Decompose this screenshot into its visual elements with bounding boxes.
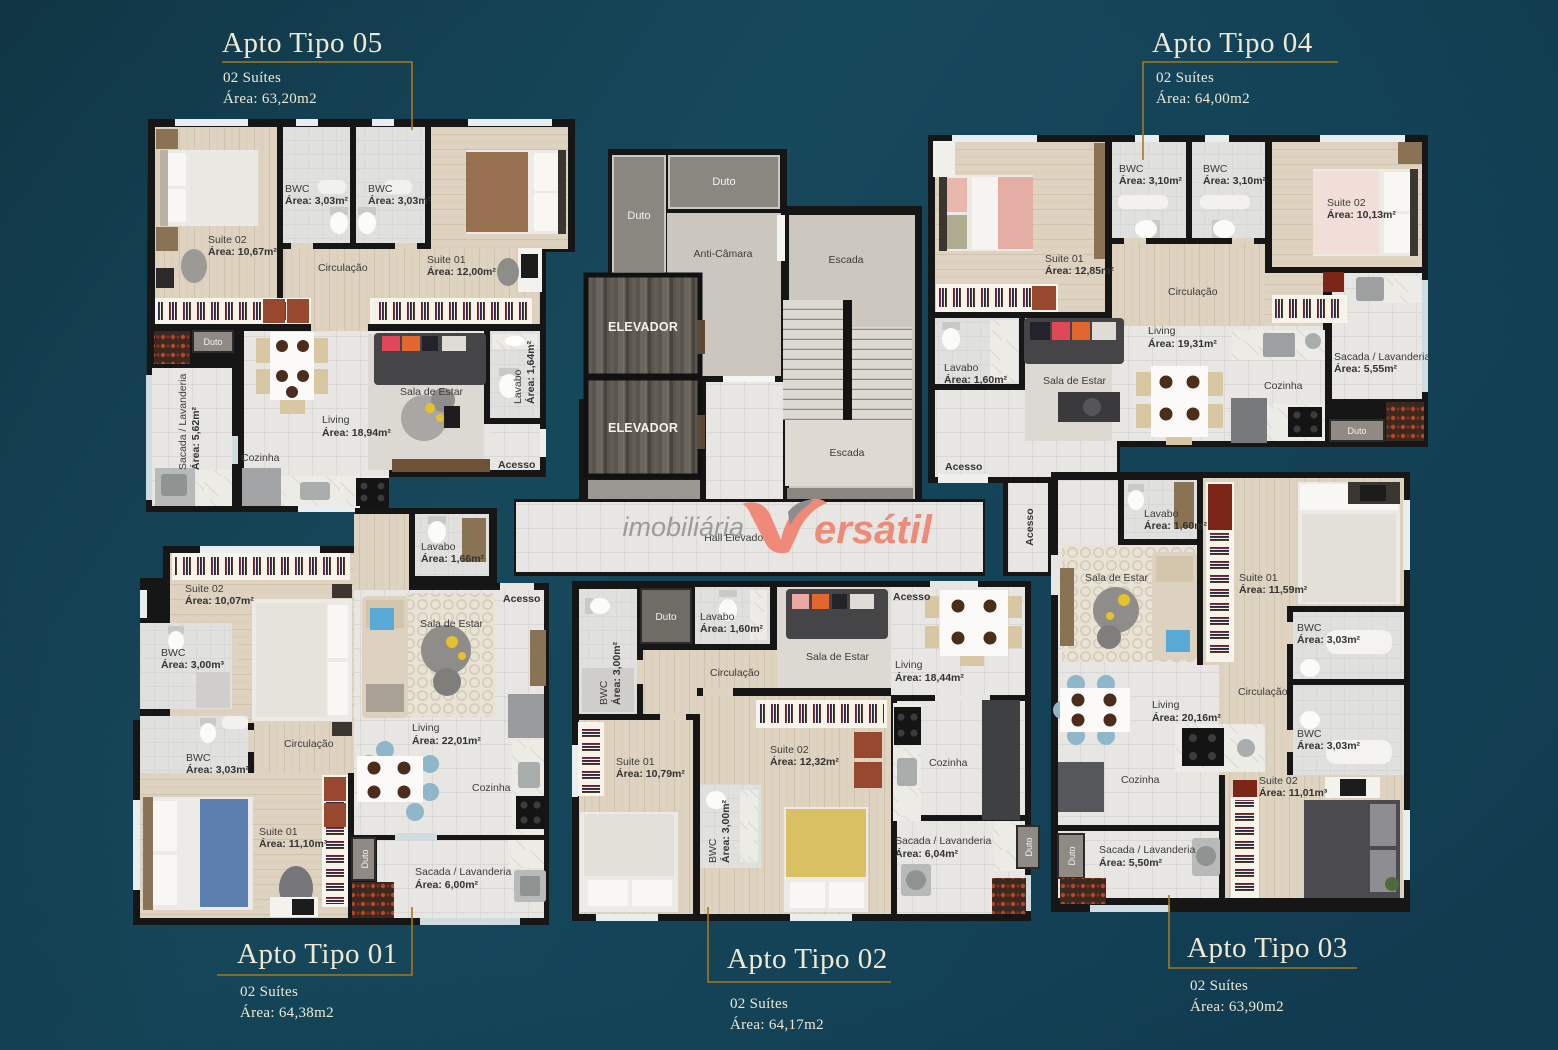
svg-text:Living: Living bbox=[412, 722, 440, 734]
svg-text:Acesso: Acesso bbox=[498, 459, 535, 471]
svg-text:Living: Living bbox=[895, 659, 923, 671]
svg-text:Área: 19,31m²: Área: 19,31m² bbox=[1148, 337, 1217, 350]
svg-text:Área: 12,85m²: Área: 12,85m² bbox=[1045, 264, 1114, 277]
svg-text:Área: 11,59m²: Área: 11,59m² bbox=[1239, 583, 1308, 596]
svg-text:BWC: BWC bbox=[707, 838, 719, 863]
svg-text:Área: 6,00m²: Área: 6,00m² bbox=[415, 878, 479, 891]
svg-text:Sacada / Lavanderia: Sacada / Lavanderia bbox=[895, 835, 991, 847]
svg-text:Apto Tipo 02: Apto Tipo 02 bbox=[727, 943, 888, 975]
svg-text:Área: 1,66m²: Área: 1,66m² bbox=[421, 552, 485, 565]
svg-text:Living: Living bbox=[1152, 699, 1180, 711]
svg-text:Área: 12,32m²: Área: 12,32m² bbox=[770, 755, 839, 768]
svg-text:Sala de Estar: Sala de Estar bbox=[1085, 572, 1149, 584]
svg-text:02 Suítes: 02 Suítes bbox=[240, 984, 298, 1000]
svg-text:Área: 6,04m²: Área: 6,04m² bbox=[895, 847, 959, 860]
svg-text:Sala de Estar: Sala de Estar bbox=[400, 386, 464, 398]
svg-text:ELEVADOR: ELEVADOR bbox=[608, 320, 678, 334]
svg-text:Área: 3,03m²: Área: 3,03m² bbox=[1297, 739, 1361, 752]
svg-text:ELEVADOR: ELEVADOR bbox=[608, 421, 678, 435]
svg-text:Duto: Duto bbox=[712, 176, 735, 188]
svg-text:Cozinha: Cozinha bbox=[929, 757, 968, 769]
svg-text:Acesso: Acesso bbox=[503, 593, 540, 605]
svg-text:BWC: BWC bbox=[161, 647, 186, 659]
svg-text:Anti-Câmara: Anti-Câmara bbox=[694, 248, 753, 260]
svg-text:Escada: Escada bbox=[829, 447, 864, 459]
svg-text:BWC: BWC bbox=[285, 183, 310, 195]
svg-text:Área: 1,60m²: Área: 1,60m² bbox=[944, 373, 1008, 386]
svg-text:Circulação: Circulação bbox=[318, 262, 368, 274]
svg-text:Cozinha: Cozinha bbox=[241, 452, 280, 464]
svg-text:Duto: Duto bbox=[360, 849, 370, 868]
svg-text:Circulação: Circulação bbox=[1238, 686, 1288, 698]
svg-text:ersátil: ersátil bbox=[814, 508, 933, 552]
svg-text:Acesso: Acesso bbox=[1024, 508, 1036, 545]
svg-text:Área: 18,44m²: Área: 18,44m² bbox=[895, 671, 964, 684]
svg-text:Lavabo: Lavabo bbox=[700, 611, 735, 623]
svg-text:02 Suítes: 02 Suítes bbox=[730, 996, 788, 1012]
svg-text:Apto Tipo 01: Apto Tipo 01 bbox=[237, 938, 398, 970]
svg-text:Lavabo: Lavabo bbox=[1144, 508, 1179, 520]
svg-text:Apto Tipo 05: Apto Tipo 05 bbox=[222, 27, 383, 59]
svg-text:Duto: Duto bbox=[1024, 837, 1034, 856]
svg-text:Living: Living bbox=[1148, 325, 1176, 337]
svg-text:Sacada / Lavanderia: Sacada / Lavanderia bbox=[415, 866, 511, 878]
svg-text:Área: 18,94m²: Área: 18,94m² bbox=[322, 426, 391, 439]
svg-text:Lavabo: Lavabo bbox=[421, 541, 456, 553]
svg-text:02 Suítes: 02 Suítes bbox=[1190, 978, 1248, 994]
svg-text:Duto: Duto bbox=[1347, 426, 1366, 436]
svg-text:BWC: BWC bbox=[186, 752, 211, 764]
svg-text:02 Suítes: 02 Suítes bbox=[1156, 70, 1214, 86]
svg-text:BWC: BWC bbox=[598, 680, 610, 705]
svg-text:BWC: BWC bbox=[1203, 163, 1228, 175]
svg-text:Apto Tipo 04: Apto Tipo 04 bbox=[1152, 27, 1313, 59]
svg-text:Acesso: Acesso bbox=[945, 461, 982, 473]
svg-text:Circulação: Circulação bbox=[710, 667, 760, 679]
svg-text:Lavabo: Lavabo bbox=[512, 369, 524, 404]
svg-text:Área: 12,00m²: Área: 12,00m² bbox=[427, 265, 496, 278]
svg-text:Circulação: Circulação bbox=[284, 738, 334, 750]
svg-text:Área: 22,01m²: Área: 22,01m² bbox=[412, 734, 481, 747]
svg-text:Área: 20,16m²: Área: 20,16m² bbox=[1152, 711, 1221, 724]
svg-text:Área: 3,03m²: Área: 3,03m² bbox=[368, 194, 432, 207]
svg-text:Área: 3,10m²: Área: 3,10m² bbox=[1203, 174, 1267, 187]
svg-text:Cozinha: Cozinha bbox=[472, 782, 511, 794]
svg-text:Duto: Duto bbox=[1067, 846, 1077, 865]
svg-text:Duto: Duto bbox=[203, 337, 222, 347]
svg-text:Duto: Duto bbox=[655, 612, 677, 623]
svg-text:Área: 3,03m²: Área: 3,03m² bbox=[1297, 633, 1361, 646]
svg-text:Suite 01: Suite 01 bbox=[616, 756, 655, 768]
svg-text:Escada: Escada bbox=[828, 254, 863, 266]
svg-text:Duto: Duto bbox=[627, 210, 650, 222]
svg-text:Área: 10,79m²: Área: 10,79m² bbox=[616, 767, 685, 780]
svg-text:Área: 1,60m²: Área: 1,60m² bbox=[1144, 519, 1208, 532]
svg-text:Suite 02: Suite 02 bbox=[770, 744, 809, 756]
svg-text:Suite 01: Suite 01 bbox=[1239, 572, 1278, 584]
svg-text:Suite 02: Suite 02 bbox=[1259, 775, 1298, 787]
svg-text:imobiliária: imobiliária bbox=[622, 512, 744, 542]
svg-text:Lavabo: Lavabo bbox=[944, 362, 979, 374]
svg-text:Suite 02: Suite 02 bbox=[185, 583, 224, 595]
svg-text:Área: 10,13m²: Área: 10,13m² bbox=[1327, 208, 1396, 221]
svg-text:Suite 02: Suite 02 bbox=[208, 234, 247, 246]
svg-text:Sala de Estar: Sala de Estar bbox=[806, 651, 870, 663]
svg-text:Área: 3,00m³: Área: 3,00m³ bbox=[161, 658, 225, 671]
svg-text:Área: 63,90m2: Área: 63,90m2 bbox=[1190, 998, 1284, 1015]
svg-text:Cozinha: Cozinha bbox=[1264, 380, 1303, 392]
svg-text:Sala de Estar: Sala de Estar bbox=[1043, 375, 1107, 387]
svg-text:Área: 10,07m²: Área: 10,07m² bbox=[185, 594, 254, 607]
svg-text:Circulação: Circulação bbox=[1168, 286, 1218, 298]
svg-text:BWC: BWC bbox=[1297, 622, 1322, 634]
svg-text:BWC: BWC bbox=[368, 183, 393, 195]
svg-text:Área: 5,50m²: Área: 5,50m² bbox=[1099, 856, 1163, 869]
svg-text:Área: 10,67m²: Área: 10,67m² bbox=[208, 245, 277, 258]
svg-text:Sacada / Lavanderia: Sacada / Lavanderia bbox=[1334, 351, 1430, 363]
svg-text:Sacada / Lavanderia: Sacada / Lavanderia bbox=[1099, 844, 1195, 856]
svg-text:Acesso: Acesso bbox=[893, 591, 930, 603]
svg-text:Área: 1,64m²: Área: 1,64m² bbox=[524, 340, 537, 404]
svg-text:Suite 01: Suite 01 bbox=[427, 254, 466, 266]
svg-text:Suite 01: Suite 01 bbox=[259, 826, 298, 838]
svg-text:Suite 02: Suite 02 bbox=[1327, 197, 1366, 209]
svg-text:BWC: BWC bbox=[1297, 728, 1322, 740]
svg-text:Área: 63,20m2: Área: 63,20m2 bbox=[223, 90, 317, 107]
svg-text:02 Suítes: 02 Suítes bbox=[223, 70, 281, 86]
svg-text:Suite 01: Suite 01 bbox=[1045, 253, 1084, 265]
svg-text:Área: 3,03m²: Área: 3,03m² bbox=[186, 763, 250, 776]
svg-text:Sala de Estar: Sala de Estar bbox=[420, 618, 484, 630]
svg-text:Área: 64,38m2: Área: 64,38m2 bbox=[240, 1004, 334, 1021]
svg-text:Apto Tipo 03: Apto Tipo 03 bbox=[1187, 932, 1348, 964]
svg-text:Área: 3,00m²: Área: 3,00m² bbox=[719, 799, 732, 863]
svg-text:Área: 3,00m²: Área: 3,00m² bbox=[610, 641, 623, 705]
svg-text:Área: 5,62m²: Área: 5,62m² bbox=[189, 406, 202, 470]
svg-text:Área: 11,01m³: Área: 11,01m³ bbox=[1259, 786, 1328, 799]
svg-text:Área: 64,00m2: Área: 64,00m2 bbox=[1156, 90, 1250, 107]
svg-text:Área: 1,60m²: Área: 1,60m² bbox=[700, 622, 764, 635]
svg-text:Área: 64,17m2: Área: 64,17m2 bbox=[730, 1016, 824, 1033]
svg-text:BWC: BWC bbox=[1119, 163, 1144, 175]
svg-text:Área: 5,55m²: Área: 5,55m² bbox=[1334, 362, 1398, 375]
svg-text:Área: 3,03m²: Área: 3,03m² bbox=[285, 194, 349, 207]
svg-text:Living: Living bbox=[322, 414, 350, 426]
svg-text:Área: 3,10m²: Área: 3,10m² bbox=[1119, 174, 1183, 187]
svg-text:Área: 11,10m³: Área: 11,10m³ bbox=[259, 837, 328, 850]
svg-text:Sacada / Lavanderia: Sacada / Lavanderia bbox=[177, 374, 189, 470]
svg-text:Cozinha: Cozinha bbox=[1121, 774, 1160, 786]
